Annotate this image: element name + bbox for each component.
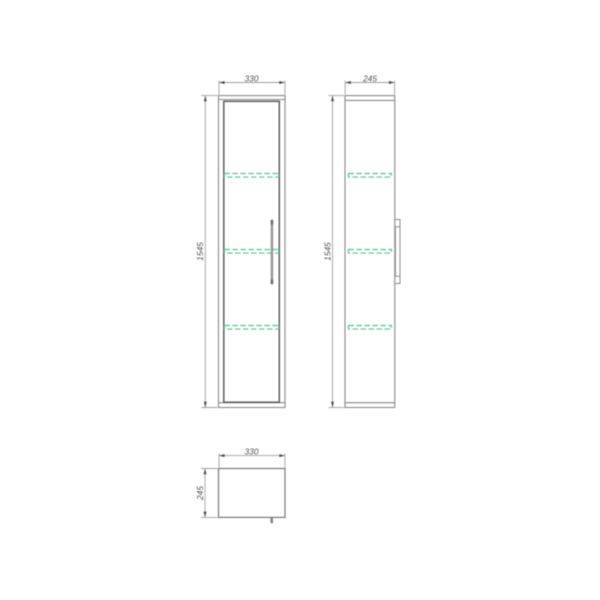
svg-text:245: 245	[362, 73, 377, 83]
svg-text:330: 330	[245, 73, 259, 83]
svg-text:1545: 1545	[322, 242, 332, 261]
svg-text:245: 245	[195, 486, 205, 501]
svg-text:1545: 1545	[195, 242, 205, 261]
svg-text:330: 330	[245, 446, 259, 456]
